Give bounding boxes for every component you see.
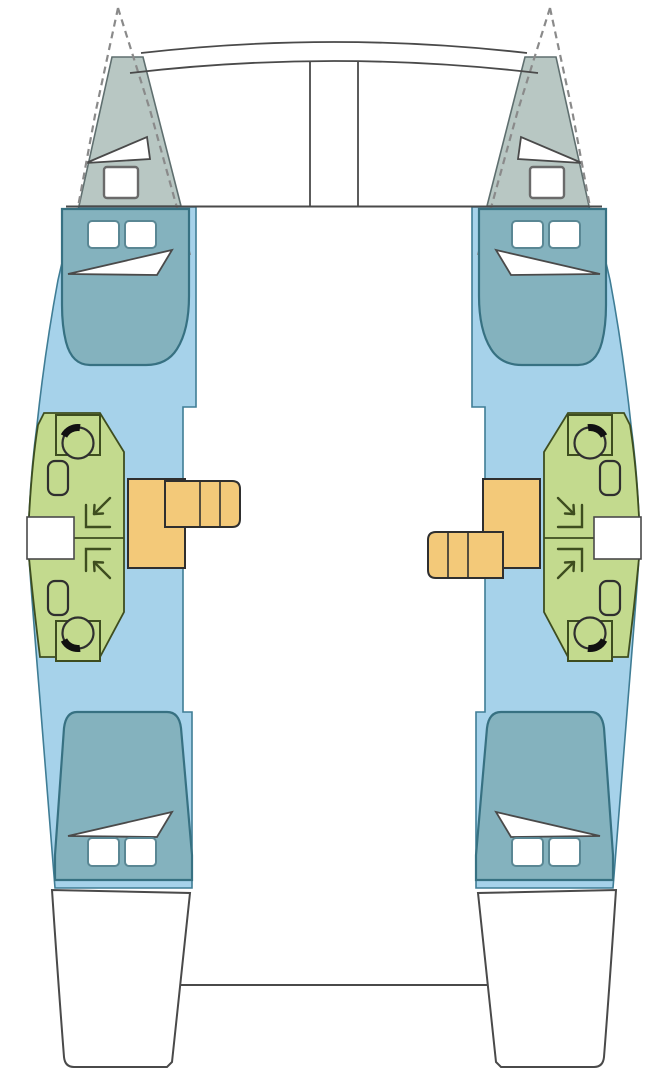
aft-berth-pillow	[125, 838, 156, 866]
forward-berth-pillow	[88, 221, 119, 248]
aft-cabin-berth	[55, 712, 192, 880]
starboard-stair-steps	[428, 532, 503, 578]
transom-steps	[52, 890, 190, 1067]
forward-crossbeam	[141, 42, 527, 53]
aft-sink-icon	[48, 581, 68, 615]
forward-sink-icon	[48, 461, 68, 495]
aft-berth-pillow	[88, 838, 119, 866]
catamaran-floor-plan	[0, 0, 648, 1080]
port-companionway	[128, 479, 240, 568]
forepeak-hatch-square-icon	[104, 167, 138, 198]
anchor-channel	[310, 61, 358, 206]
starboard-companionway	[428, 479, 540, 578]
floor-plan-canvas	[0, 0, 648, 1080]
trampoline-front-beam	[130, 61, 538, 73]
hull-side-window-recess	[27, 517, 74, 559]
port-stair-steps	[165, 481, 240, 527]
forward-berth-pillow	[125, 221, 156, 248]
